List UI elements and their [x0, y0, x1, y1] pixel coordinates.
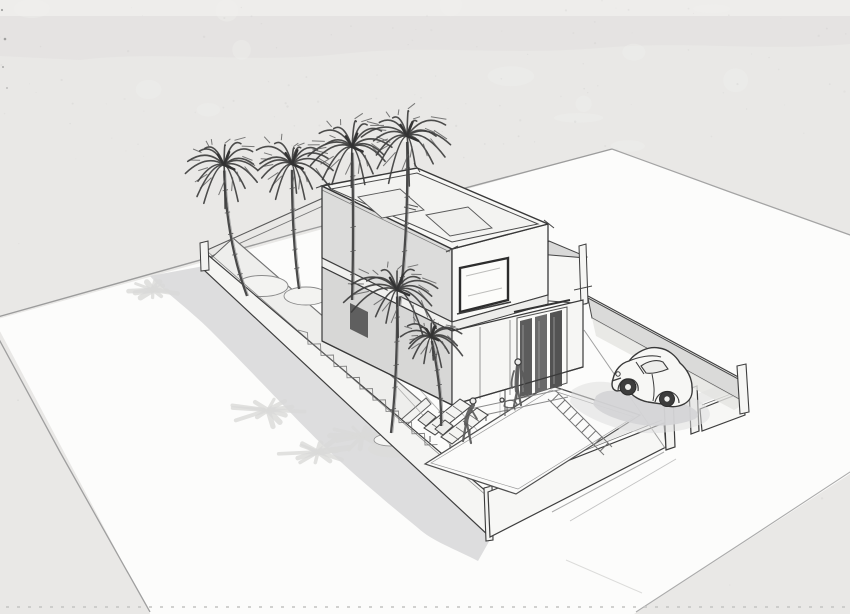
paper-speckle	[143, 156, 144, 157]
paper-speckle	[75, 158, 76, 159]
paper-speckle	[17, 399, 19, 401]
paper-speckle	[72, 103, 74, 105]
paper-speckle	[125, 150, 126, 151]
paper-speckle	[476, 46, 477, 47]
paper-blob	[488, 66, 535, 86]
paper-speckle	[241, 7, 242, 8]
paper-speckle	[778, 69, 780, 71]
palm-frond-barb	[424, 323, 425, 326]
paper-speckle	[442, 131, 443, 132]
sketch-page	[0, 0, 850, 614]
paper-speckle	[69, 123, 70, 124]
paper-speckle	[583, 63, 584, 64]
paper-speckle	[845, 33, 847, 35]
paper-speckle	[519, 119, 521, 121]
paper-speckle	[484, 143, 486, 145]
paper-speckle	[233, 100, 235, 102]
paper-speckle	[615, 8, 616, 9]
paper-speckle	[572, 32, 574, 34]
paper-speckle	[587, 92, 588, 93]
figure-dog-head	[500, 398, 504, 402]
palm-frond-barb	[312, 141, 325, 142]
paper-speckle	[194, 112, 196, 114]
car-wheel-hub	[625, 384, 631, 390]
paper-speckle	[518, 135, 520, 137]
paper-speckle	[291, 145, 293, 147]
paper-speckle	[780, 18, 781, 19]
paper-blob	[136, 80, 162, 99]
paper-speckle	[503, 143, 505, 145]
paper-speckle	[465, 103, 466, 104]
paper-speckle	[843, 90, 845, 92]
paper-speckle	[375, 98, 377, 100]
paper-speckle	[420, 97, 422, 99]
paper-speckle	[426, 15, 428, 17]
paper-speckle	[616, 148, 617, 149]
paper-speckle	[279, 135, 280, 136]
paper-speckle	[317, 100, 319, 102]
palm-frond-barb	[242, 146, 255, 147]
wing-corner-post	[579, 244, 588, 305]
back-left-corner-post	[200, 241, 209, 271]
paper-speckle	[268, 81, 269, 82]
paper-speckle	[803, 133, 805, 135]
paper-speckle	[826, 28, 828, 30]
paper-speckle	[261, 23, 263, 25]
paper-speckle	[430, 29, 432, 31]
paper-speckle	[127, 50, 129, 52]
paper-speckle	[35, 92, 36, 93]
paper-speckle	[223, 17, 225, 19]
car-headlight	[616, 372, 620, 376]
palm-frond	[351, 147, 352, 187]
paper-speckle	[560, 96, 562, 98]
paper-speckle	[463, 157, 465, 159]
paper-speckle	[455, 125, 457, 127]
car-wheel-hub	[664, 396, 669, 401]
splat-frond	[271, 407, 292, 410]
paper-speckle	[821, 497, 823, 499]
paper-speckle	[829, 83, 831, 85]
paper-corner-specks-part	[2, 66, 4, 68]
paper-blob	[554, 113, 603, 123]
paper-speckle	[435, 75, 437, 77]
paper-speckle	[723, 92, 724, 93]
paper-speckle	[276, 47, 277, 48]
paper-speckle	[392, 27, 394, 29]
paper-speckle	[124, 98, 126, 100]
paper-speckle	[818, 35, 820, 37]
paper-speckle	[631, 104, 632, 105]
paper-speckle	[222, 107, 224, 109]
paper-speckle	[527, 54, 528, 55]
paper-blob	[693, 4, 730, 13]
figure-standing-stroke	[517, 366, 518, 391]
paper-corner-specks-part	[1, 9, 3, 11]
paper-speckle	[597, 85, 599, 87]
figure-crouching-head	[470, 398, 476, 404]
paper-blob	[723, 68, 748, 92]
paper-blob	[232, 40, 251, 60]
paper-speckle	[594, 42, 596, 44]
paper-blob	[197, 103, 221, 116]
paper-speckle	[142, 15, 143, 16]
paper-speckle	[0, 64, 2, 66]
paper-speckle	[500, 78, 502, 80]
palm-frond-barb	[387, 262, 388, 268]
paper-speckle	[251, 15, 253, 17]
paper-speckle	[688, 8, 690, 10]
paper-speckle	[274, 116, 275, 117]
sketch-canvas	[0, 0, 850, 614]
paper-blob	[622, 44, 645, 61]
paper-speckle	[143, 111, 144, 112]
paper-speckle	[331, 34, 332, 35]
paper-speckle	[574, 121, 576, 123]
paper-speckle	[604, 145, 606, 147]
paper-speckle	[288, 84, 290, 86]
paper-corner-specks-part	[6, 87, 8, 89]
paper-blob	[216, 0, 239, 22]
paper-speckle	[408, 44, 409, 45]
paper-speckle	[18, 243, 19, 244]
paper-speckle	[693, 13, 694, 14]
paper-speckle	[106, 103, 107, 104]
splat-frond	[322, 448, 349, 452]
paper-speckle	[137, 143, 139, 145]
paper-speckle	[398, 120, 399, 121]
paper-speckle	[499, 105, 501, 107]
paper-speckle	[736, 83, 738, 85]
palm-frond-barb	[281, 134, 282, 140]
paper-speckle	[294, 125, 296, 127]
paper-speckle	[688, 49, 690, 51]
paper-speckle	[414, 94, 415, 95]
figure-standing-head	[515, 359, 521, 365]
paper-speckle	[415, 29, 416, 30]
paper-speckle	[412, 40, 414, 42]
paper-speckle	[347, 159, 348, 160]
paper-speckle	[768, 57, 770, 59]
paper-speckle	[131, 7, 132, 8]
entry-doors-part	[535, 314, 547, 393]
paper-speckle	[534, 141, 535, 142]
paper-speckle	[583, 88, 585, 90]
paper-corner-specks-part	[4, 38, 7, 41]
paper-speckle	[350, 25, 352, 27]
paper-speckle	[29, 83, 30, 84]
paper-speckle	[203, 36, 205, 38]
paper-speckle	[40, 46, 42, 48]
paper-blob	[576, 96, 592, 112]
entry-doors-part	[550, 310, 562, 389]
paper-speckle	[594, 21, 596, 23]
paper-speckle	[628, 9, 630, 11]
paper-speckle	[784, 104, 785, 105]
paper-speckle	[501, 31, 502, 32]
paper-speckle	[305, 76, 307, 78]
paper-speckle	[376, 74, 378, 76]
paper-speckle	[565, 9, 567, 11]
paper-speckle	[286, 105, 288, 107]
paper-speckle	[4, 113, 5, 114]
paper-speckle	[111, 137, 112, 138]
paper-speckle	[448, 108, 449, 109]
paper-speckle	[729, 584, 731, 586]
paper-speckle	[61, 79, 63, 81]
splat-frond	[279, 452, 314, 454]
paper-speckle	[411, 107, 412, 108]
paper-speckle	[318, 124, 320, 126]
paper-speckle	[285, 102, 287, 104]
paper-blob	[14, 0, 50, 18]
paper-speckle	[728, 14, 730, 16]
paper-speckle	[746, 108, 747, 109]
paper-speckle	[632, 32, 633, 33]
paper-speckle	[711, 136, 713, 138]
paper-speckle	[751, 53, 752, 54]
splat-frond	[129, 290, 151, 291]
